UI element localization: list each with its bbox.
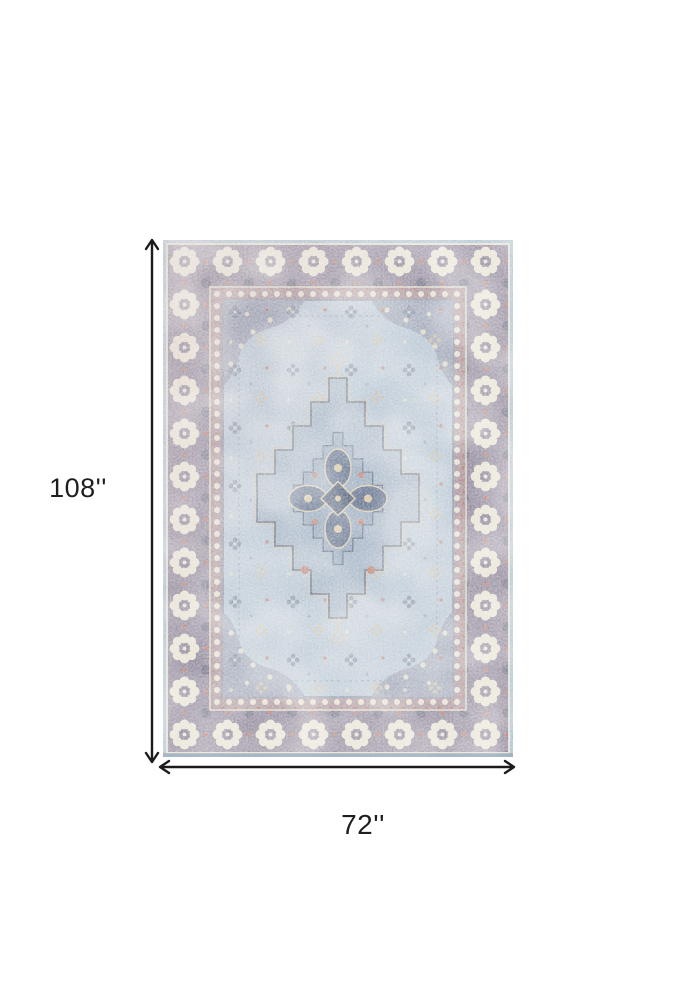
product-dimension-diagram: 108'' 72'' [0, 0, 675, 1000]
height-dimension-label: 108'' [30, 474, 126, 504]
rug-image [163, 240, 513, 757]
width-dimension-label: 72'' [308, 810, 418, 841]
height-arrow [144, 236, 160, 766]
width-arrow [155, 759, 519, 775]
